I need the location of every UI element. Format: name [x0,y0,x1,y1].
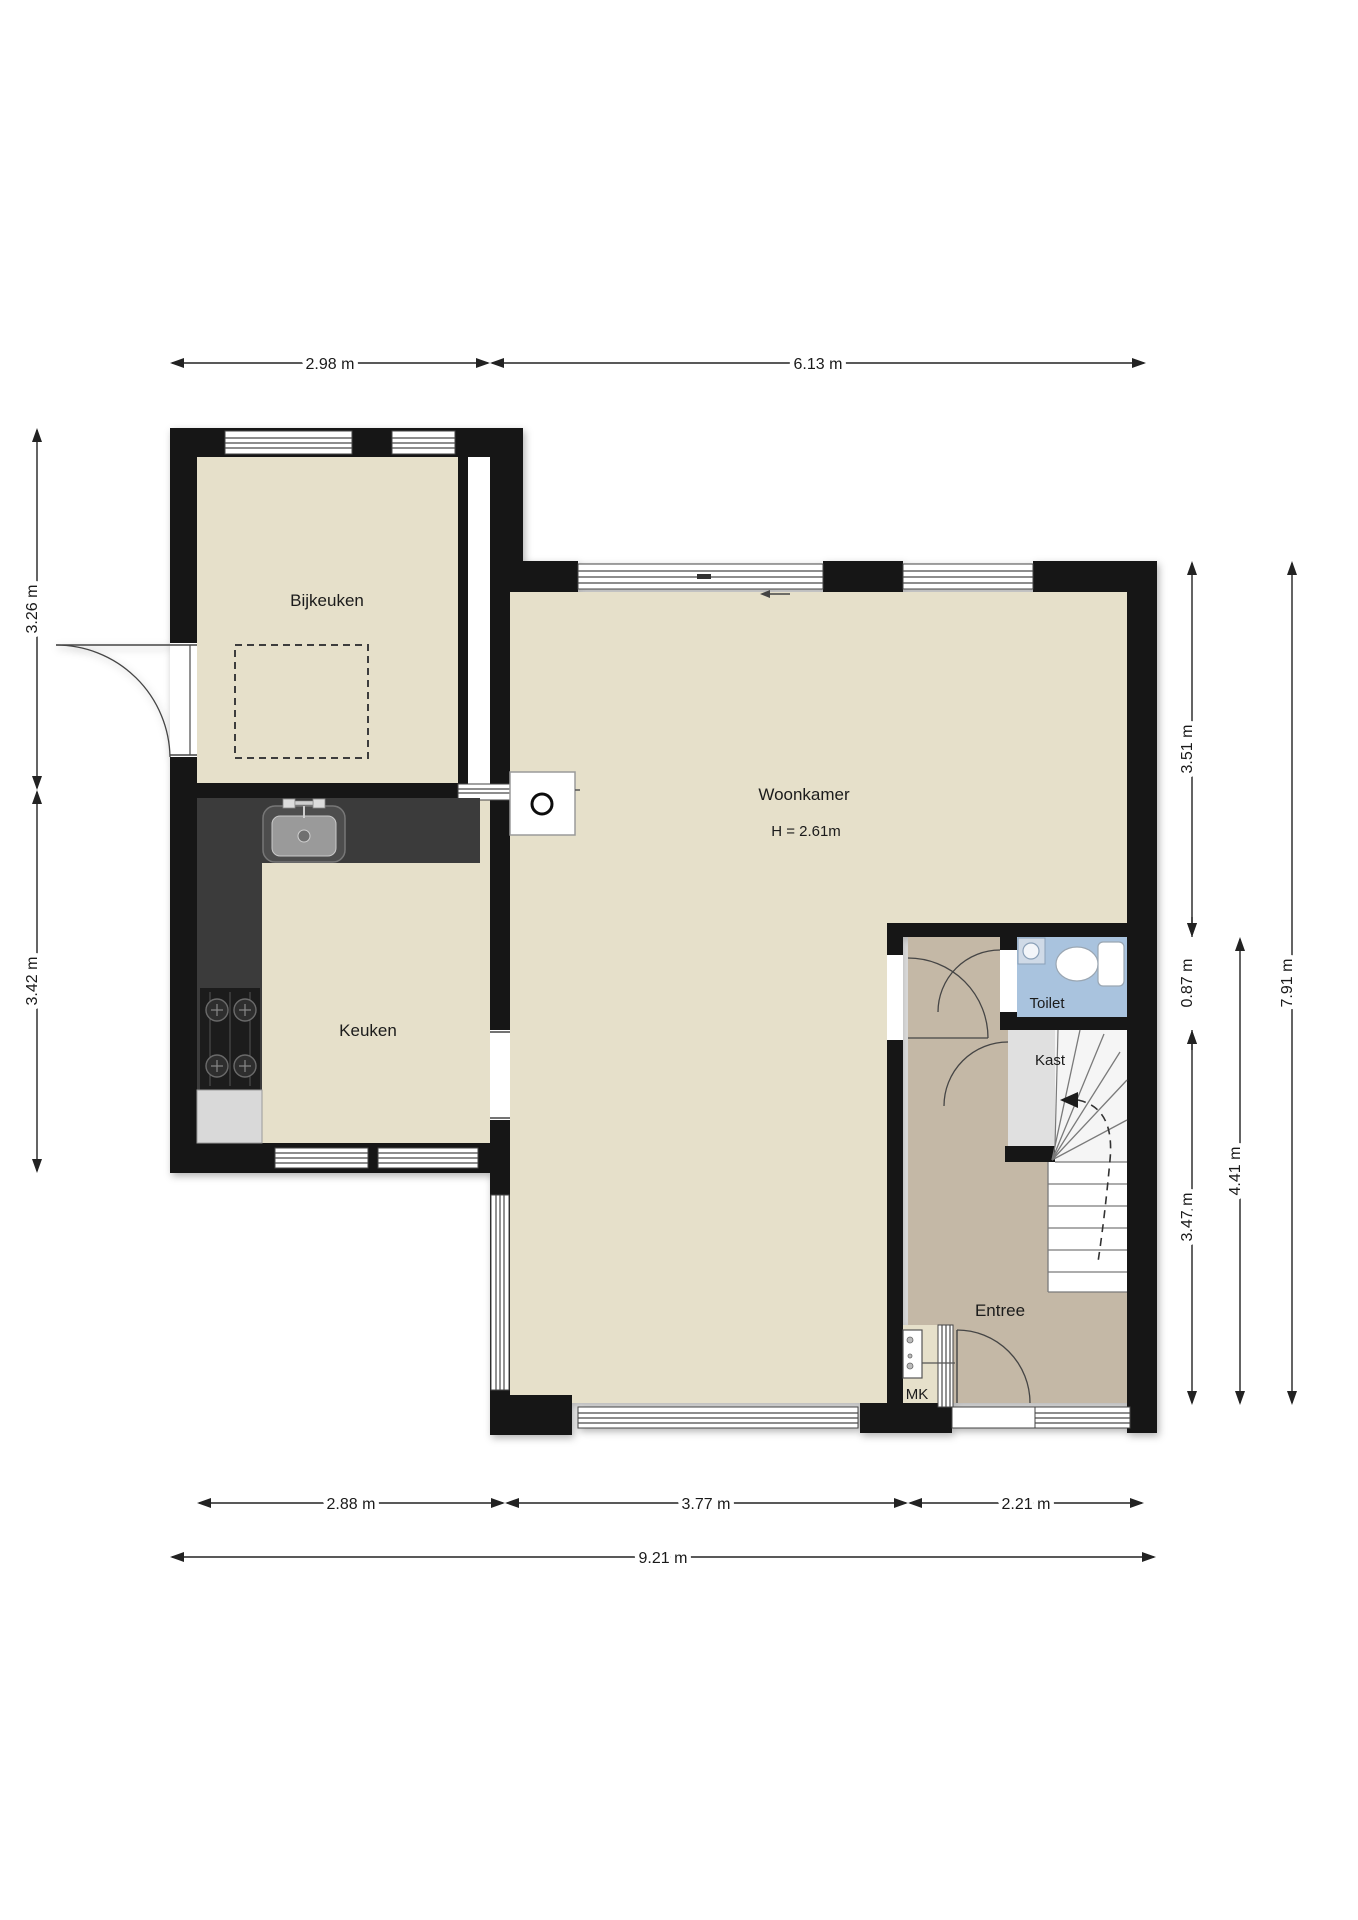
window-woonkamer-left [491,1195,509,1390]
dim-right-4: 4.41 m [1227,937,1245,1405]
window-bijkeuken-2 [392,431,455,454]
dim-top-1: 2.98 m [170,356,490,373]
fridge-icon [197,1090,262,1143]
floorplan-page: Bijkeuken Keuken Woonkamer H = 2.61m Toi… [0,0,1358,1920]
kitchen-hatch-window [458,784,510,800]
bijkeuken-door-opening [170,643,197,757]
woonkamer-height-label: H = 2.61m [771,823,841,840]
keuken-label: Keuken [339,1021,397,1040]
window-bijkeuken-1 [225,431,352,454]
floorplan: Bijkeuken Keuken Woonkamer H = 2.61m Toi… [56,428,1157,1435]
svg-text:4.41 m: 4.41 m [1227,1147,1244,1196]
dim-bottom-2: 3.77 m [505,1496,908,1513]
svg-text:3.47 m: 3.47 m [1179,1193,1196,1242]
mk-door [938,1325,953,1407]
front-door-threshold [952,1407,1035,1428]
svg-text:6.13 m: 6.13 m [794,356,843,373]
dim-bottom-1: 2.88 m [197,1496,505,1513]
keuken-doorway [490,1030,510,1120]
toilet-label: Toilet [1029,995,1065,1012]
dim-bottom-total: 9.21 m [170,1550,1156,1567]
toilet-doorway [1000,950,1017,1012]
window-woonkamer-top-2 [903,564,1033,589]
bijkeuken-floor [197,457,458,783]
dim-top-2: 6.13 m [490,356,1146,373]
window-entree-bottom [1035,1407,1130,1428]
dim-right-5: 7.91 m [1279,561,1297,1405]
mk-label: MK [906,1386,929,1403]
heater-icon [510,772,580,835]
kast-label: Kast [1035,1052,1066,1069]
dim-bottom-3: 2.21 m [908,1496,1144,1513]
floorplan-canvas: Bijkeuken Keuken Woonkamer H = 2.61m Toi… [0,0,1358,1920]
svg-text:0.87 m: 0.87 m [1179,959,1196,1008]
dim-left-1: 3.26 m [24,428,42,790]
dim-right-2: 0.87 m [1179,917,1197,1050]
dim-left-2: 3.42 m [24,790,42,1173]
svg-text:3.26 m: 3.26 m [24,585,41,634]
svg-text:3.51 m: 3.51 m [1179,725,1196,774]
hand-basin-icon [1018,938,1045,964]
sink-icon [263,799,345,862]
woonkamer-label: Woonkamer [758,785,850,804]
kast-floor [1008,1030,1058,1146]
svg-text:2.21 m: 2.21 m [1002,1496,1051,1513]
window-keuken-1 [275,1148,368,1168]
svg-text:2.98 m: 2.98 m [306,356,355,373]
bijkeuken-label: Bijkeuken [290,591,364,610]
dim-right-3: 3.47 m [1179,1030,1197,1405]
entree-label: Entree [975,1301,1025,1320]
window-keuken-2 [378,1148,478,1168]
dim-right-1: 3.51 m [1179,561,1197,937]
svg-text:3.42 m: 3.42 m [24,957,41,1006]
window-woonkamer-bottom [578,1407,858,1428]
stove-icon [200,988,260,1090]
svg-text:3.77 m: 3.77 m [682,1496,731,1513]
woonkamer-entree-doorway [887,955,903,1040]
svg-text:9.21 m: 9.21 m [639,1550,688,1567]
svg-text:2.88 m: 2.88 m [327,1496,376,1513]
void-strip [468,457,490,800]
bijkeuken-exterior-door [56,645,170,757]
svg-text:7.91 m: 7.91 m [1279,959,1296,1008]
